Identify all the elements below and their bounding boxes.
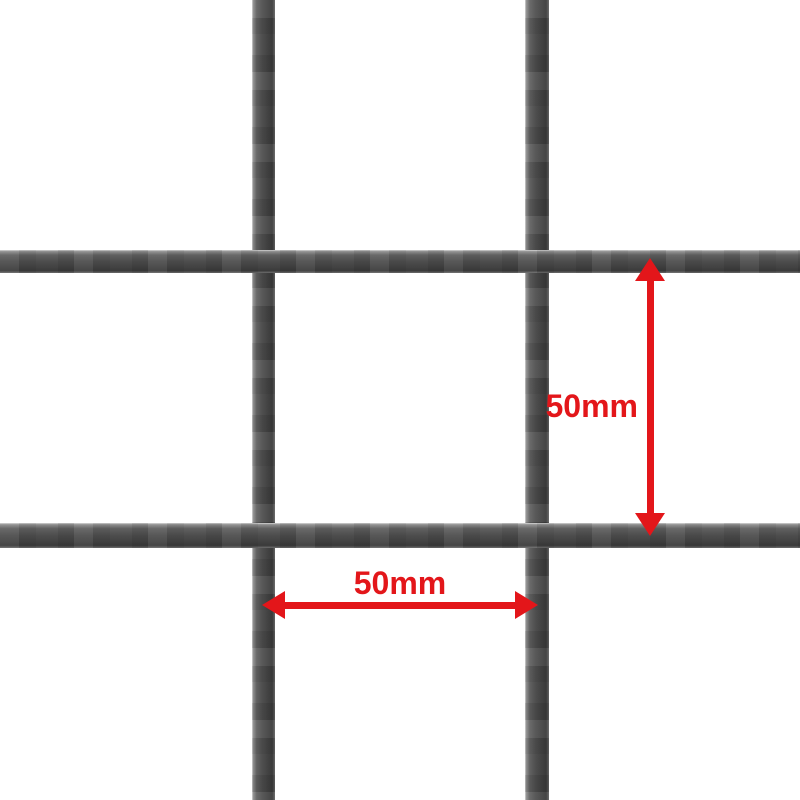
horizontal-arrow-shaft bbox=[280, 602, 520, 609]
vertical-dimension-arrow bbox=[635, 258, 666, 536]
mesh-product-image: 50mm 50mm bbox=[0, 0, 800, 800]
vertical-arrow-shaft bbox=[647, 276, 654, 518]
vertical-wire-left bbox=[252, 0, 275, 800]
horizontal-dimension-label: 50mm bbox=[262, 567, 538, 599]
arrowhead-down-icon bbox=[635, 513, 665, 536]
horizontal-wire-top bbox=[0, 250, 800, 273]
horizontal-wire-bottom bbox=[0, 523, 800, 548]
vertical-dimension-label: 50mm bbox=[546, 390, 639, 422]
